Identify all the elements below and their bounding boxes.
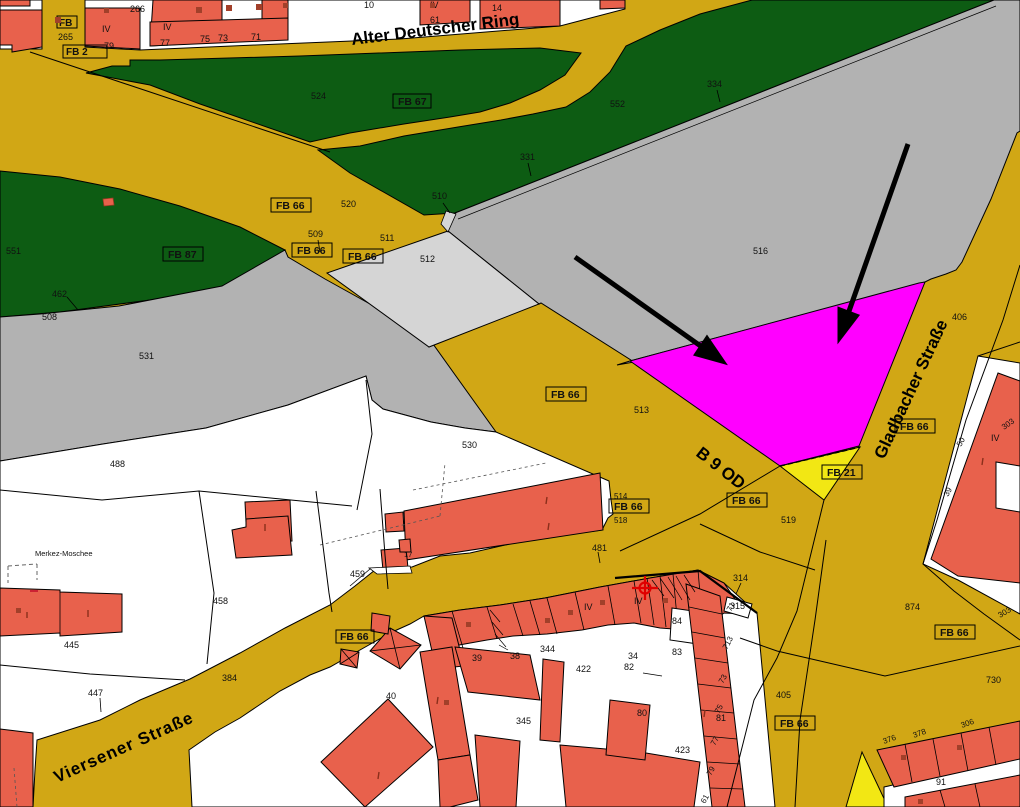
svg-text:531: 531 [139, 351, 154, 361]
svg-text:FB 21: FB 21 [827, 467, 856, 479]
svg-text:FB: FB [59, 18, 72, 29]
svg-text:FB 66: FB 66 [732, 495, 761, 507]
svg-text:513: 513 [634, 405, 649, 415]
svg-text:462: 462 [52, 289, 67, 299]
svg-text:552: 552 [610, 99, 625, 109]
svg-text:266: 266 [130, 4, 145, 14]
svg-text:83: 83 [672, 647, 682, 657]
svg-text:524: 524 [311, 91, 326, 101]
svg-text:IV: IV [634, 596, 643, 606]
svg-text:874: 874 [905, 602, 920, 612]
svg-text:265: 265 [58, 32, 73, 42]
svg-text:Merkez-Moschee: Merkez-Moschee [35, 549, 93, 558]
svg-text:17: 17 [404, 550, 412, 559]
svg-text:512: 512 [420, 254, 435, 264]
svg-text:520: 520 [341, 199, 356, 209]
svg-text:FB 67: FB 67 [398, 96, 427, 108]
svg-text:331: 331 [520, 152, 535, 162]
svg-text:14: 14 [492, 3, 502, 13]
svg-text:80: 80 [637, 708, 647, 718]
svg-text:IV: IV [584, 602, 593, 612]
svg-text:314: 314 [733, 573, 748, 583]
svg-text:508: 508 [42, 312, 57, 322]
svg-text:422: 422 [576, 664, 591, 674]
svg-text:345: 345 [516, 716, 531, 726]
svg-text:405: 405 [776, 690, 791, 700]
svg-text:516: 516 [753, 246, 768, 256]
svg-text:730: 730 [986, 675, 1001, 685]
svg-text:551: 551 [6, 246, 21, 256]
svg-text:IV: IV [163, 22, 172, 32]
svg-text:40: 40 [386, 691, 396, 701]
svg-text:IV: IV [102, 24, 111, 34]
svg-text:459: 459 [350, 569, 365, 579]
svg-text:75: 75 [200, 34, 210, 44]
svg-text:61: 61 [430, 15, 440, 25]
svg-text:FB 66: FB 66 [297, 245, 326, 257]
svg-text:FB 66: FB 66 [276, 200, 305, 212]
svg-text:73: 73 [218, 33, 228, 43]
svg-text:FB 66: FB 66 [348, 251, 377, 263]
svg-text:FB 66: FB 66 [780, 718, 809, 730]
svg-text:511: 511 [380, 233, 394, 243]
svg-text:FB 66: FB 66 [614, 501, 643, 513]
svg-text:10: 10 [364, 0, 374, 10]
svg-text:384: 384 [222, 673, 237, 683]
svg-text:406: 406 [952, 312, 967, 322]
svg-text:81: 81 [716, 713, 726, 723]
svg-text:447: 447 [88, 688, 103, 698]
svg-text:530: 530 [462, 440, 477, 450]
svg-text:84: 84 [672, 616, 682, 626]
svg-text:82: 82 [624, 662, 634, 672]
svg-text:488: 488 [110, 459, 125, 469]
svg-text:423: 423 [675, 745, 690, 755]
svg-text:514: 514 [614, 492, 628, 501]
svg-text:39: 39 [472, 653, 482, 663]
svg-text:91: 91 [936, 777, 946, 787]
svg-text:IV: IV [991, 433, 1000, 443]
svg-text:FB 66: FB 66 [551, 389, 580, 401]
svg-text:77: 77 [160, 38, 170, 48]
svg-text:79: 79 [104, 41, 114, 51]
svg-text:FB 66: FB 66 [340, 631, 369, 643]
svg-text:445: 445 [64, 640, 79, 650]
svg-text:458: 458 [213, 596, 228, 606]
svg-text:FB 2: FB 2 [66, 47, 88, 58]
svg-text:481: 481 [592, 543, 607, 553]
svg-text:518: 518 [614, 516, 628, 525]
svg-text:510: 510 [432, 191, 447, 201]
svg-text:519: 519 [781, 515, 796, 525]
svg-text:71: 71 [251, 32, 261, 42]
svg-text:344: 344 [540, 644, 555, 654]
svg-text:334: 334 [707, 79, 722, 89]
svg-text:34: 34 [628, 651, 638, 661]
svg-text:FB 66: FB 66 [940, 627, 969, 639]
svg-text:38: 38 [510, 651, 520, 661]
svg-text:FB 87: FB 87 [168, 249, 197, 261]
svg-text:509: 509 [308, 229, 323, 239]
